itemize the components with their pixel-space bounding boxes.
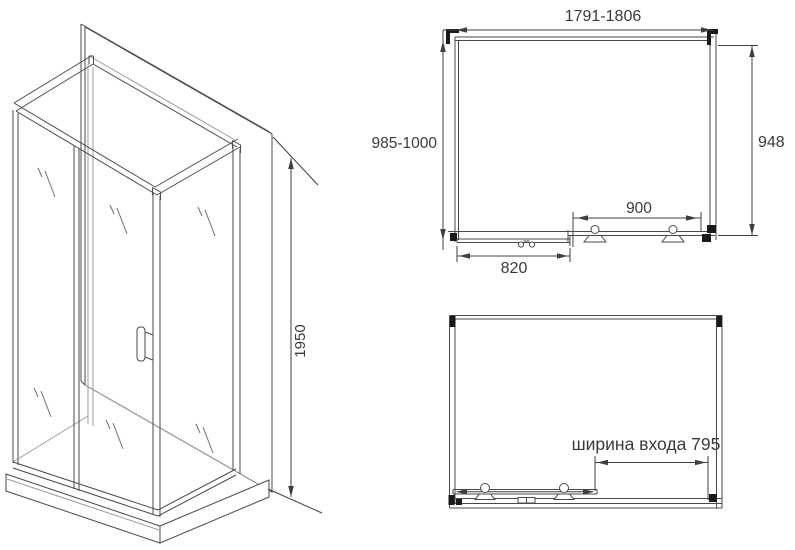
door-guide	[518, 498, 535, 504]
technical-drawing-canvas: 1950	[0, 0, 795, 550]
plan-slide-rail	[568, 226, 684, 244]
dimension-label-rail: 900	[626, 200, 652, 217]
plan-frame	[448, 33, 716, 242]
dimension-label-height: 1950	[292, 324, 309, 357]
height-dimension: 1950	[268, 137, 322, 513]
dimension-label-width: 1791-1806	[565, 8, 642, 25]
front-sliding-door	[453, 484, 597, 504]
dimension-label-panel: 820	[501, 260, 528, 277]
dimension-label-entrance: ширина входа 795	[572, 434, 721, 454]
shower-tray	[6, 474, 269, 543]
drawing-page: 1950	[0, 0, 795, 550]
right-depth-dimension: 948	[718, 46, 785, 236]
entrance-dimension: ширина входа 795	[572, 434, 721, 500]
panel-dimension: 820	[457, 246, 570, 277]
dimension-label-depth: 985-1000	[371, 135, 437, 152]
plan-view: 1791-1806 985-1000 948 900	[371, 8, 784, 277]
plan-left-door-bar	[457, 236, 570, 248]
wall-brackets	[446, 29, 718, 242]
front-wall-clamps	[449, 316, 723, 505]
back-wall-panel	[81, 24, 272, 492]
roller	[662, 226, 684, 243]
depth-dimension: 985-1000	[371, 30, 445, 250]
roller	[584, 226, 606, 243]
dimension-label-right-depth: 948	[758, 134, 785, 151]
front-view: ширина входа 795	[449, 316, 723, 509]
front-frame	[450, 316, 723, 509]
isometric-view: 1950	[6, 24, 322, 543]
width-dimension: 1791-1806	[443, 8, 713, 33]
